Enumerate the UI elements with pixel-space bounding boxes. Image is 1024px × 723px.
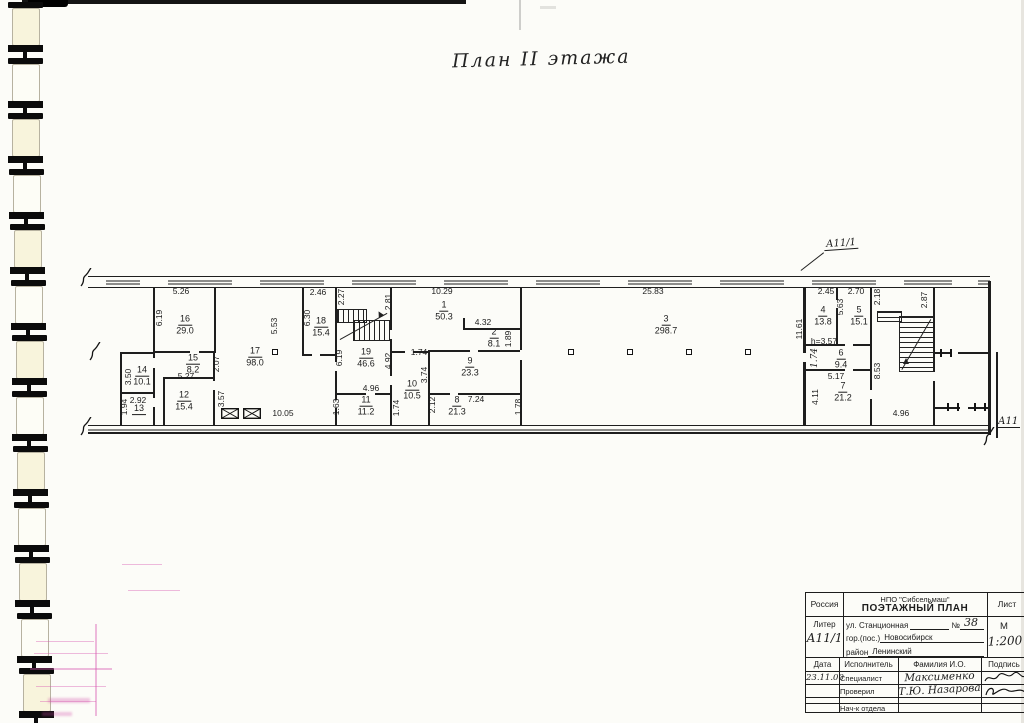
wall xyxy=(120,352,155,354)
binding-hole xyxy=(12,391,56,447)
room-label: 1815.4 xyxy=(312,316,330,339)
wall xyxy=(428,350,430,426)
date-column-header: Дата xyxy=(806,660,839,669)
dimension-label: 4.96 xyxy=(363,383,380,393)
wall-break-mark xyxy=(79,417,93,441)
door-opening xyxy=(213,381,215,390)
wall xyxy=(988,281,991,435)
dimension-label: 1.74 xyxy=(810,348,820,368)
window-pier xyxy=(784,276,812,288)
callout-leader-line xyxy=(801,252,825,271)
dept-head-role: Нач-к отдела xyxy=(840,704,898,713)
number-label: № xyxy=(951,621,960,630)
country-label: Россия xyxy=(806,599,843,609)
binding-stem xyxy=(34,718,38,723)
dimension-label: 4.96 xyxy=(893,408,910,418)
liter-value: А11/1 xyxy=(806,631,843,645)
room-number: 3 xyxy=(661,314,670,326)
dimension-label: 2.87 xyxy=(919,292,929,309)
signature-checker xyxy=(983,684,1024,698)
binding-hole-window xyxy=(17,452,45,490)
door-tick xyxy=(940,349,942,357)
room-label: 1946.6 xyxy=(357,347,375,370)
wall xyxy=(121,392,154,394)
dimension-label: 4.11 xyxy=(810,389,820,405)
dimension-label: 10.05 xyxy=(272,408,293,418)
dimension-label: 2.07 xyxy=(211,356,221,373)
window-pier xyxy=(876,276,904,288)
room-number: 1 xyxy=(439,300,448,312)
stair-direction-arrow xyxy=(903,358,909,364)
wall xyxy=(870,287,872,426)
binding-tooth xyxy=(17,656,52,663)
column-marker xyxy=(745,349,751,355)
door-tick xyxy=(974,403,976,411)
wall-break-mark xyxy=(88,342,102,366)
room-area: 21.3 xyxy=(448,407,466,418)
dimension-label: 1.63 xyxy=(331,399,341,416)
bleedthrough-mark xyxy=(30,668,112,670)
binding-hole-window xyxy=(21,619,49,657)
dimension-label: 2.45 xyxy=(818,286,835,296)
column-marker xyxy=(627,349,633,355)
door-opening xyxy=(153,358,155,368)
dimension-label: 1.74 xyxy=(391,400,401,417)
binding-hole-window xyxy=(14,230,42,268)
binding-tooth xyxy=(17,613,52,619)
dimension-label: 5.27 xyxy=(178,371,195,381)
column-marker xyxy=(272,349,278,355)
dimension-label: 2.46 xyxy=(310,287,327,297)
binding-hole xyxy=(15,557,59,613)
sheet-label: Лист xyxy=(987,599,1024,609)
room-number: 17 xyxy=(248,346,262,358)
room-number: 5 xyxy=(854,305,863,317)
room-area: 98.0 xyxy=(246,358,264,369)
room-number: 8 xyxy=(452,395,461,407)
document-type: ПОЭТАЖНЫЙ ПЛАН xyxy=(843,603,987,614)
dimension-label: 2.27 xyxy=(336,289,346,306)
dimension-label: 10.29 xyxy=(431,286,452,296)
binding-hole xyxy=(8,58,52,114)
door-opening xyxy=(933,372,935,381)
column-marker xyxy=(686,349,692,355)
section-callout-bottom: А11 xyxy=(996,416,1020,428)
sign-column-header: Подпись xyxy=(981,660,1024,669)
binding-tooth xyxy=(12,434,47,441)
titleblock-line xyxy=(806,703,1024,704)
room-number: 12 xyxy=(177,390,191,402)
column-marker xyxy=(568,349,574,355)
binding-hole-window xyxy=(18,508,46,546)
room-number: 15 xyxy=(186,353,200,365)
address-district-line: район Ленинский xyxy=(844,643,986,657)
date-value: 23.11.00 xyxy=(806,673,839,683)
wall-break-mark xyxy=(79,268,93,292)
binding-hole xyxy=(13,446,57,502)
room-label: 821.3 xyxy=(448,395,466,418)
binding-hole-window xyxy=(23,674,51,712)
room-number: 7 xyxy=(838,381,847,393)
door-tick xyxy=(984,403,986,411)
room-area: 15.4 xyxy=(175,402,193,413)
window-pier xyxy=(508,276,536,288)
room-number: 19 xyxy=(359,347,373,359)
underline-fill xyxy=(910,629,949,630)
dimension-label: 6.19 xyxy=(154,310,164,327)
room-area: 50.3 xyxy=(435,312,453,323)
binding-tooth xyxy=(8,156,43,163)
title-block: Россия НПО "Сибсельмаш" ПОЭТАЖНЫЙ ПЛАН Л… xyxy=(805,592,1024,713)
section-callout-top: А11/1 xyxy=(824,237,859,251)
exterior-wall-bottom xyxy=(88,425,990,434)
binding-tooth xyxy=(10,267,45,274)
district-value: Ленинский xyxy=(868,647,984,657)
room-number: 11 xyxy=(359,395,372,407)
dimension-label: 7.24 xyxy=(468,394,485,404)
binding-tooth xyxy=(14,502,49,508)
dimension-label: 25.83 xyxy=(642,286,663,296)
stair-treads xyxy=(353,320,390,341)
binding-tooth xyxy=(8,58,43,64)
room-label: 1798.0 xyxy=(246,346,264,369)
dimension-label: 8.53 xyxy=(872,363,882,380)
room-number: 6 xyxy=(836,348,845,360)
door-opening xyxy=(520,350,522,360)
shaft-symbol xyxy=(243,406,261,417)
room-number: 9 xyxy=(465,356,474,368)
room-label: 69.4 xyxy=(835,348,848,371)
room-label: 515.1 xyxy=(850,305,868,328)
binding-hole-window xyxy=(16,341,44,379)
dimension-label: h=3.57 xyxy=(811,336,837,346)
district-label: район xyxy=(846,648,868,657)
dimension-label: 1.94 xyxy=(119,399,129,416)
window-pier xyxy=(692,276,720,288)
scale-value: 1:200 xyxy=(978,633,1024,649)
door-tick xyxy=(957,403,959,411)
room-label: 1410.1 xyxy=(133,365,151,388)
dimension-label: 3.50 xyxy=(123,369,133,386)
window-pier xyxy=(232,276,260,288)
room-area: 23.3 xyxy=(461,368,479,379)
window-pier xyxy=(140,276,168,288)
dimension-label: 2.18 xyxy=(872,289,882,306)
room-area: 11.2 xyxy=(358,407,375,418)
room-area: 10.1 xyxy=(133,377,151,388)
specialist-role: Специалист xyxy=(840,674,898,683)
binding-tooth xyxy=(9,212,44,219)
dimension-label: 1.74 xyxy=(411,347,428,357)
checker-role: Проверил xyxy=(840,687,898,696)
binding-hole-window xyxy=(12,64,40,102)
dimension-label: 2.12 xyxy=(427,397,437,414)
wall xyxy=(996,352,998,438)
door-opening xyxy=(803,353,806,362)
dimension-label: 2.70 xyxy=(848,286,865,296)
binding-hole-window xyxy=(16,397,44,435)
binding-hole xyxy=(8,2,52,58)
dimension-label: 4.92 xyxy=(383,353,393,370)
dimension-label: 2.81 xyxy=(383,294,393,311)
dimension-label: 5.53 xyxy=(269,318,279,335)
dimension-label: 5.17 xyxy=(828,371,845,381)
binding-hole xyxy=(12,335,56,391)
wall xyxy=(934,352,989,354)
window-pier xyxy=(600,276,628,288)
window-pier xyxy=(324,276,352,288)
room-label: 1111.2 xyxy=(358,395,375,418)
room-label: 721.2 xyxy=(834,381,852,404)
dimension-label: 4.32 xyxy=(475,317,492,327)
room-number: 16 xyxy=(178,314,192,326)
door-opening xyxy=(845,344,853,346)
binding-tooth xyxy=(11,323,46,330)
dimension-label: 6.19 xyxy=(334,350,344,367)
shaft-symbol xyxy=(221,406,239,417)
bleedthrough-mark xyxy=(48,698,90,703)
scale-label: М xyxy=(981,621,1024,632)
dimension-label: 1.78 xyxy=(513,399,523,416)
room-area: 9.4 xyxy=(835,360,848,371)
dimension-label: 6.30 xyxy=(302,310,312,327)
binding-hole-window xyxy=(12,119,40,157)
binding-hole-window xyxy=(13,175,41,213)
wall xyxy=(214,287,216,353)
room-area: 15.1 xyxy=(850,317,868,328)
room-label: 1215.4 xyxy=(175,390,193,413)
room-label: 1629.0 xyxy=(176,314,194,337)
bleedthrough-mark xyxy=(42,712,72,716)
binding-tooth xyxy=(12,391,47,397)
bleedthrough-mark xyxy=(34,653,108,654)
wall-break-mark xyxy=(982,427,996,451)
wall xyxy=(163,377,165,426)
binding-hole-window xyxy=(19,563,47,601)
room-area: 298.7 xyxy=(655,326,678,337)
door-tick xyxy=(950,349,952,357)
binding-tooth xyxy=(11,280,46,286)
window-pier xyxy=(952,276,978,288)
binding-hole xyxy=(11,280,55,336)
room-label: 3298.7 xyxy=(655,314,678,337)
liter-label: Литер xyxy=(806,620,843,629)
door-opening xyxy=(312,354,320,356)
room-number: 2 xyxy=(489,327,498,339)
executor-column-header: Исполнитель xyxy=(839,660,898,669)
binding-hole xyxy=(8,113,52,169)
door-opening xyxy=(390,330,392,339)
binding-tooth xyxy=(8,101,43,108)
city-value: Новосибирск xyxy=(880,633,984,643)
dimension-label: 11.61 xyxy=(794,319,804,340)
signature-specialist xyxy=(983,672,1024,684)
room-area: 29.0 xyxy=(176,326,194,337)
street-label: ул. Станционная xyxy=(846,621,908,630)
binding-tooth xyxy=(13,489,48,496)
room-number: 18 xyxy=(314,316,328,328)
door-opening xyxy=(960,407,968,409)
room-label: 413.8 xyxy=(814,305,832,328)
binding-hole xyxy=(14,502,58,558)
address-city-line: гор.(пос.) Новосибирск xyxy=(844,630,986,644)
room-area: 21.2 xyxy=(834,393,852,404)
scanned-floorplan-page: План II этажа А11/1 А11 1629.01798.0158.… xyxy=(0,0,1024,723)
address-street-line: ул. Станционная № 38 xyxy=(844,616,986,630)
room-number: 10 xyxy=(405,379,419,391)
binding-hole xyxy=(10,224,54,280)
binding-hole-window xyxy=(12,8,40,46)
name-column-header: Фамилия И.О. xyxy=(898,660,981,669)
binding-hole-window xyxy=(15,286,43,324)
binding-hole xyxy=(9,169,53,225)
room-label: 150.3 xyxy=(435,300,453,323)
dimension-label: 5.26 xyxy=(173,286,190,296)
city-label: гор.(пос.) xyxy=(846,634,880,643)
binding-tooth xyxy=(12,378,47,385)
bleedthrough-mark xyxy=(95,624,97,716)
bleedthrough-mark xyxy=(122,564,162,565)
binding-tooth xyxy=(15,600,50,607)
dimension-label: 3.74 xyxy=(419,367,429,384)
dimension-label: 2.92 xyxy=(130,395,147,405)
room-label: 923.3 xyxy=(461,356,479,379)
room-area: 15.4 xyxy=(312,328,330,339)
door-tick xyxy=(947,403,949,411)
room-number: 4 xyxy=(818,305,827,317)
bleedthrough-mark xyxy=(128,590,180,591)
room-area: 13.8 xyxy=(814,317,832,328)
room-area: 8.1 xyxy=(488,339,501,350)
door-opening xyxy=(470,350,478,352)
address-block: ул. Станционная № 38 гор.(пос.) Новосиби… xyxy=(844,616,986,657)
door-opening xyxy=(153,398,155,407)
dimension-label: 5.63 xyxy=(835,299,845,316)
door-opening xyxy=(870,390,872,399)
binding-tooth xyxy=(14,545,49,552)
room-label: 28.1 xyxy=(488,327,501,350)
dimension-label: 1.89 xyxy=(503,331,513,348)
bleedthrough-mark xyxy=(36,641,94,642)
room-number: 14 xyxy=(135,365,149,377)
dimension-label: 3.57 xyxy=(216,391,226,408)
door-opening xyxy=(390,376,392,385)
room-area: 46.6 xyxy=(357,359,375,370)
binding-tooth xyxy=(8,45,43,52)
binding-tooth xyxy=(9,169,44,175)
room-area: 10.5 xyxy=(403,391,421,402)
